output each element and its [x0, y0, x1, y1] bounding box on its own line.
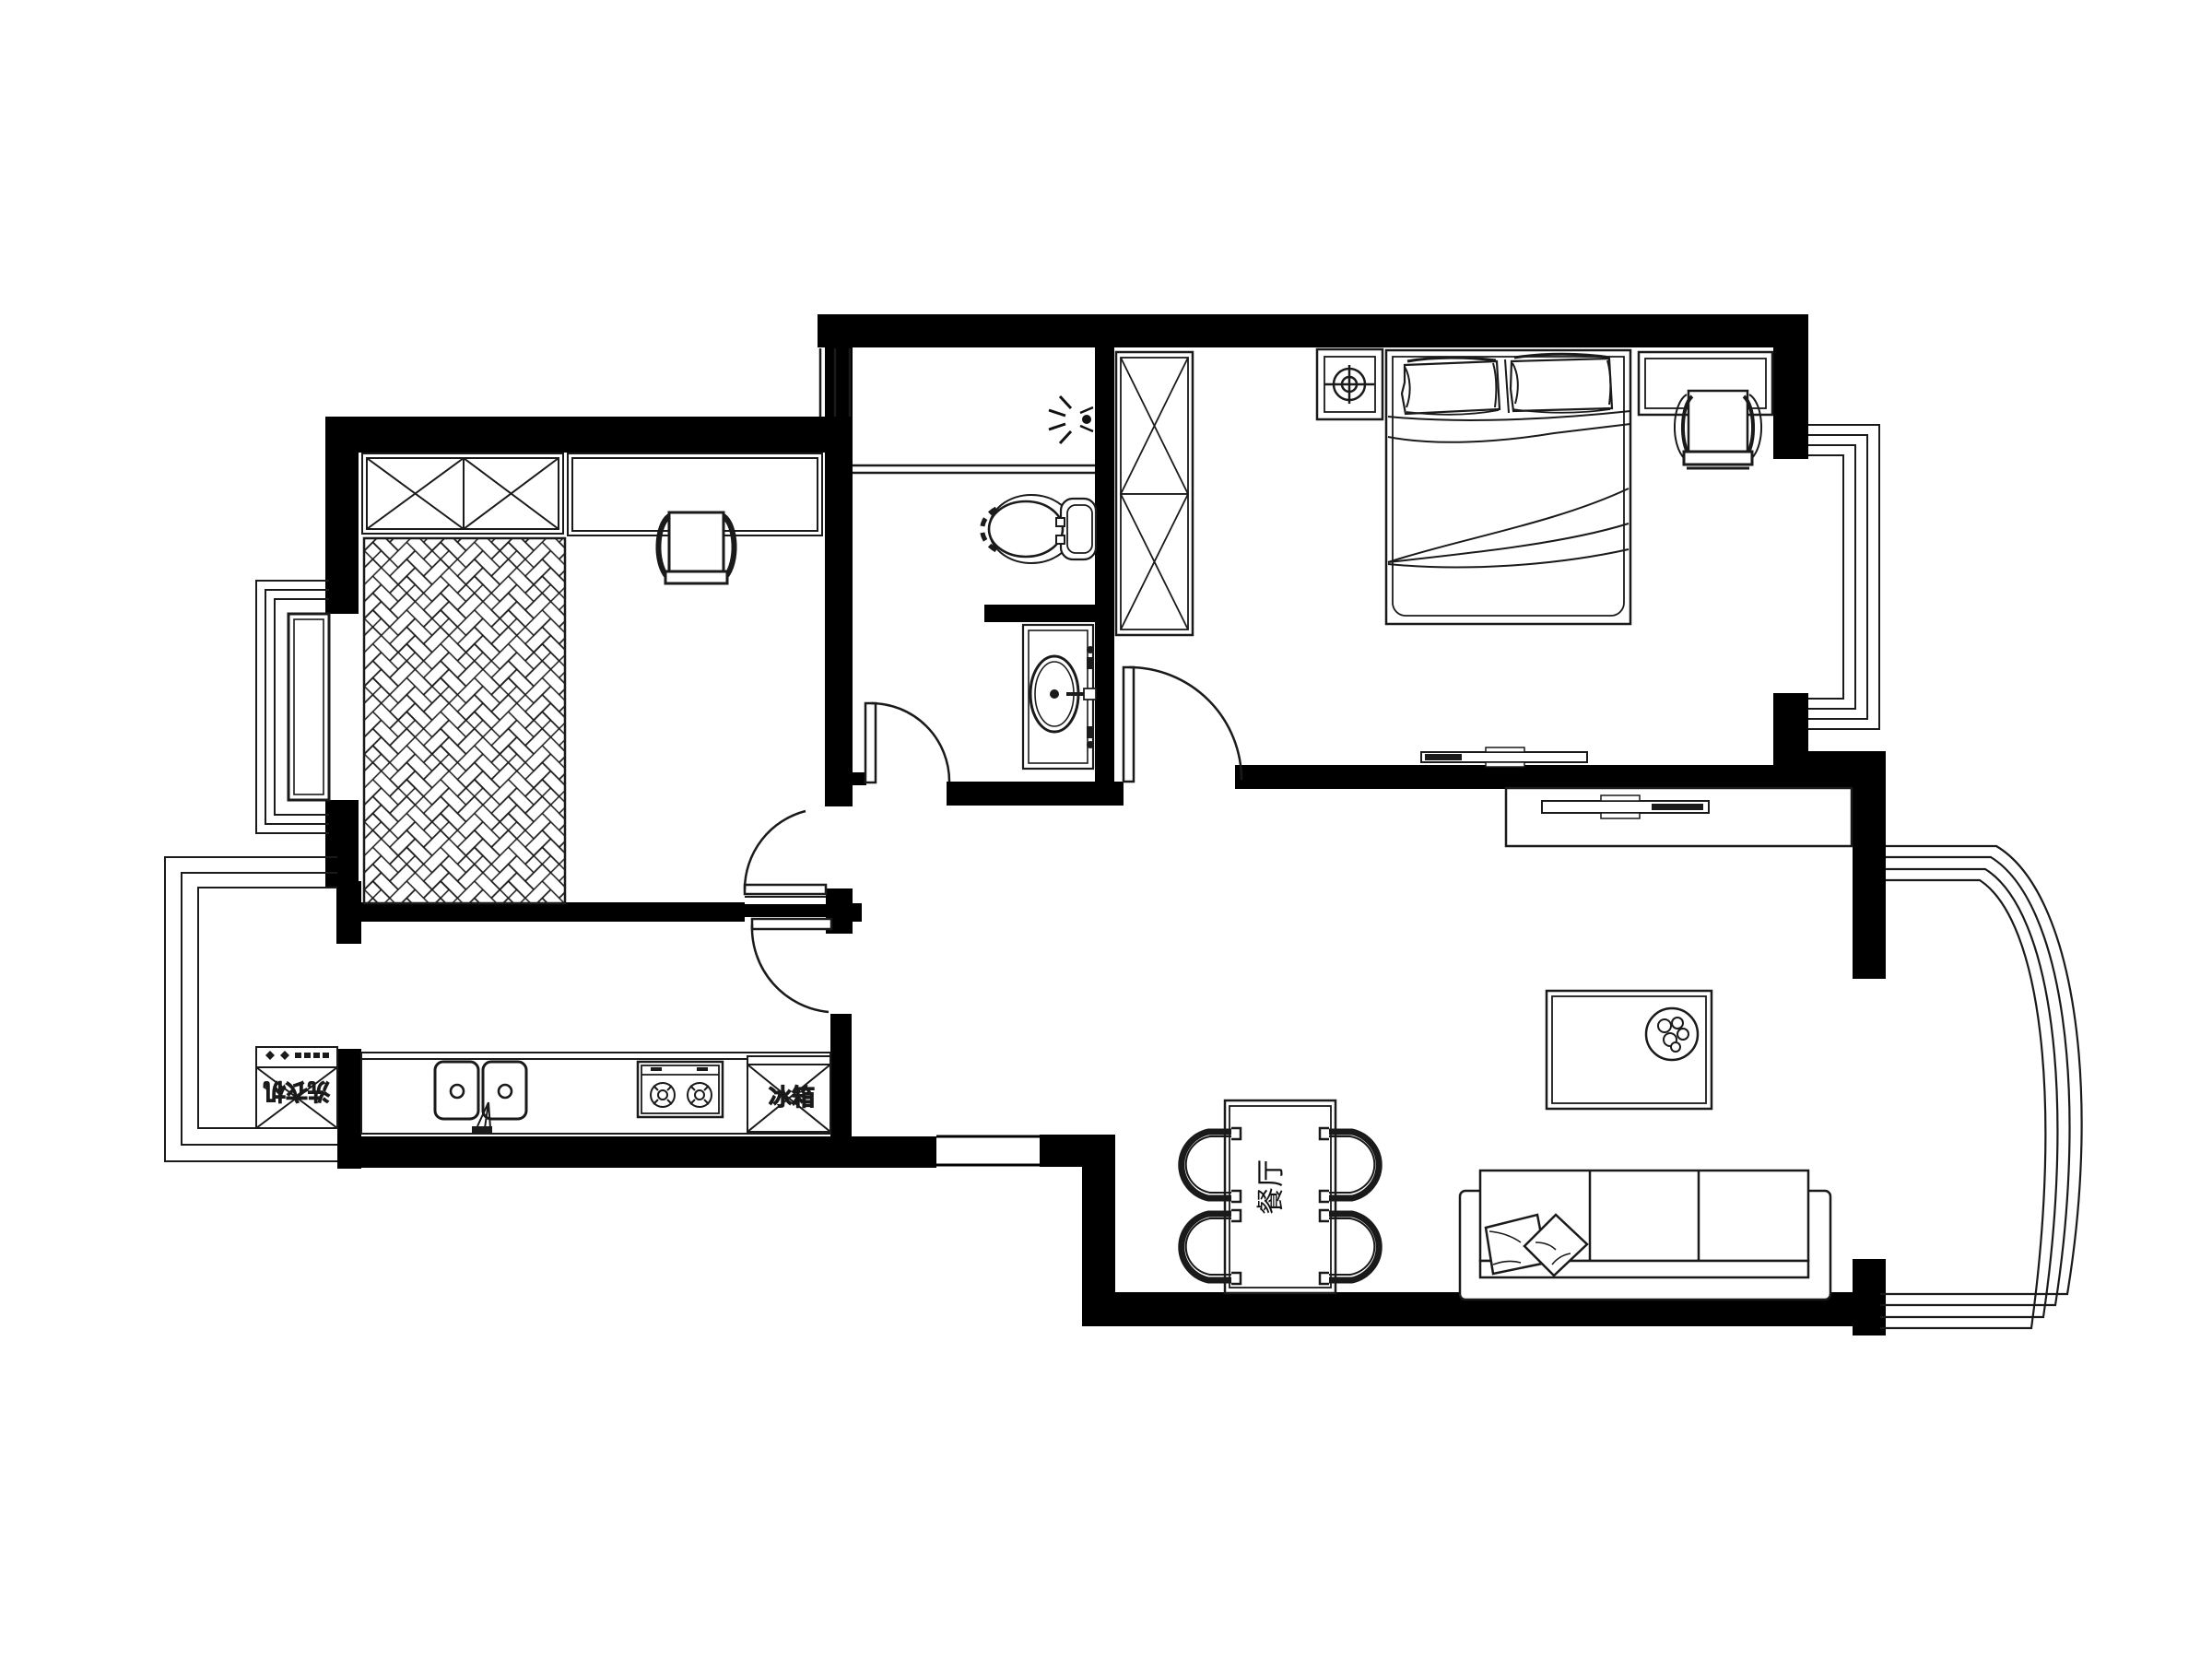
svg-text:餐厅: 餐厅 — [1256, 1159, 1287, 1215]
svg-text:冰箱: 冰箱 — [769, 1085, 815, 1111]
svg-text:洗衣机: 洗衣机 — [264, 1078, 330, 1103]
